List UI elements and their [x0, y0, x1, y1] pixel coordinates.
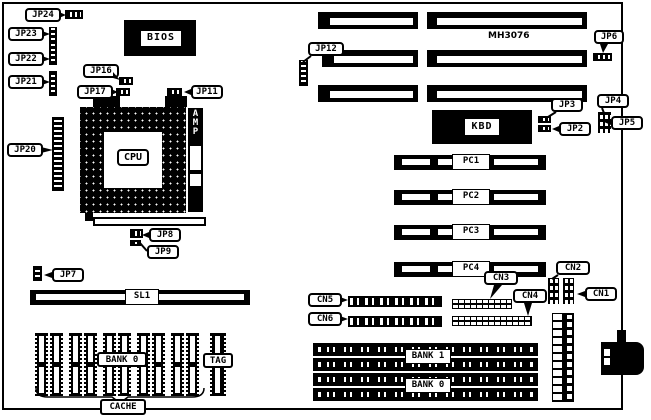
jp8-label: JP8 [149, 228, 181, 242]
jp20-label: JP20 [7, 143, 43, 157]
jp22-connector [49, 42, 57, 65]
cache-chip [69, 333, 82, 396]
cache-chip [50, 333, 63, 396]
jp5-label: JP5 [611, 116, 643, 130]
cache-bank0-label: BANK 0 [97, 352, 147, 367]
cn4-label: CN4 [513, 289, 547, 303]
jp7-label: JP7 [52, 268, 84, 282]
power-connector [552, 313, 574, 402]
isa-slot [318, 12, 418, 29]
bios-chip: BIOS [124, 20, 196, 56]
jp21-connector [49, 71, 57, 96]
cache-chip [35, 333, 48, 396]
isa-slot [427, 12, 587, 29]
jp12-label: JP12 [308, 42, 344, 56]
pc3-slot: PC3 [394, 225, 546, 240]
board-model-text: MH3076 [488, 31, 530, 41]
cn2-connector [548, 278, 559, 304]
cn4-connector [452, 316, 532, 326]
pc4-slot: PC4 [394, 262, 546, 277]
bank0-label: BANK 0 [405, 378, 451, 393]
cn3-connector [452, 299, 512, 309]
tag-label: TAG [203, 353, 233, 368]
pc2-slot: PC2 [394, 190, 546, 205]
cpu-label: CPU [117, 149, 149, 166]
cache-chip [186, 333, 199, 396]
sl1-label: SL1 [125, 289, 159, 305]
jp2-connector [538, 125, 551, 132]
jp9-connector [130, 240, 141, 246]
jp23-label: JP23 [8, 27, 44, 41]
bank1-label: BANK 1 [405, 349, 451, 364]
jp9-label: JP9 [147, 245, 179, 259]
jp7-connector [33, 266, 42, 281]
jp6-connector [593, 53, 612, 61]
isa-slot [318, 85, 418, 102]
cn1-connector [563, 278, 574, 304]
jp3-label: JP3 [551, 98, 583, 112]
cache-chip [152, 333, 165, 396]
pc3-label: PC3 [452, 224, 490, 240]
pc2-label: PC2 [452, 189, 490, 205]
cn6-connector [348, 316, 442, 327]
jp17-connector [116, 88, 130, 96]
cache-chip [84, 333, 97, 396]
amp-window [190, 146, 201, 170]
pc1-label: PC1 [452, 154, 490, 170]
jp3-connector [538, 116, 551, 123]
jp4-connector [598, 112, 611, 133]
pc1-slot: PC1 [394, 155, 546, 170]
cache-label: CACHE [100, 399, 146, 415]
cpu-socket-tab [165, 96, 187, 107]
cn3-label: CN3 [484, 271, 518, 285]
jp17-label: JP17 [77, 85, 113, 99]
jp6-label: JP6 [594, 30, 624, 44]
amp-regulator: A M P [188, 108, 203, 212]
jp24-connector [65, 10, 83, 19]
kbd-label: KBD [465, 119, 499, 135]
cn5-connector [348, 296, 442, 307]
jp11-connector [167, 88, 182, 96]
jp16-label: JP16 [83, 64, 119, 78]
amp-label: A M P [188, 110, 203, 137]
sl1-slot: SL1 [30, 290, 250, 305]
jp8-connector [130, 229, 143, 238]
bios-label: BIOS [141, 31, 181, 46]
jp16-connector [119, 77, 133, 85]
amp-window [190, 174, 201, 186]
cn5-label: CN5 [308, 293, 342, 307]
jp20-connector [52, 117, 64, 191]
cn2-label: CN2 [556, 261, 590, 275]
motherboard-diagram: JP24 JP23 JP22 JP21 BIOS JP16 JP17 JP11 … [0, 0, 651, 420]
kbd-chip: KBD [432, 110, 532, 144]
cn1-label: CN1 [585, 287, 617, 301]
cn6-label: CN6 [308, 312, 342, 326]
jp22-label: JP22 [8, 52, 44, 66]
jp11-label: JP11 [191, 85, 223, 99]
cpu-socket-corner [85, 213, 93, 221]
jp12-connector [299, 60, 308, 86]
cpu-retention-bar [93, 217, 206, 226]
jp24-label: JP24 [25, 8, 61, 22]
isa-slot [427, 50, 587, 67]
cache-chip [171, 333, 184, 396]
jp21-label: JP21 [8, 75, 44, 89]
jp2-label: JP2 [559, 122, 591, 136]
jp4-label: JP4 [597, 94, 629, 108]
keyboard-din-connector [601, 342, 644, 375]
